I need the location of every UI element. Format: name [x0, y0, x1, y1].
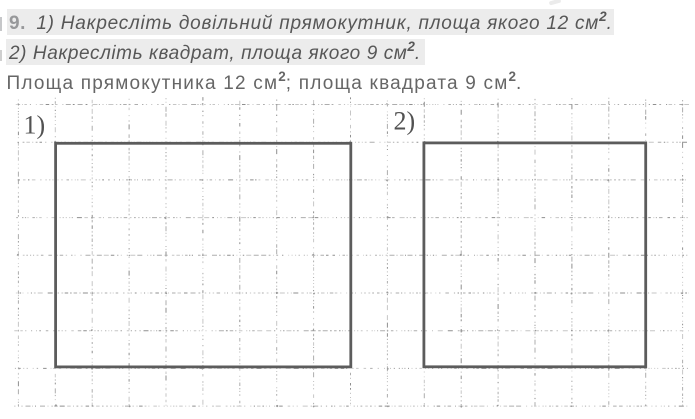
svg-text:1): 1) [24, 111, 46, 140]
svg-text:2): 2) [394, 107, 416, 136]
